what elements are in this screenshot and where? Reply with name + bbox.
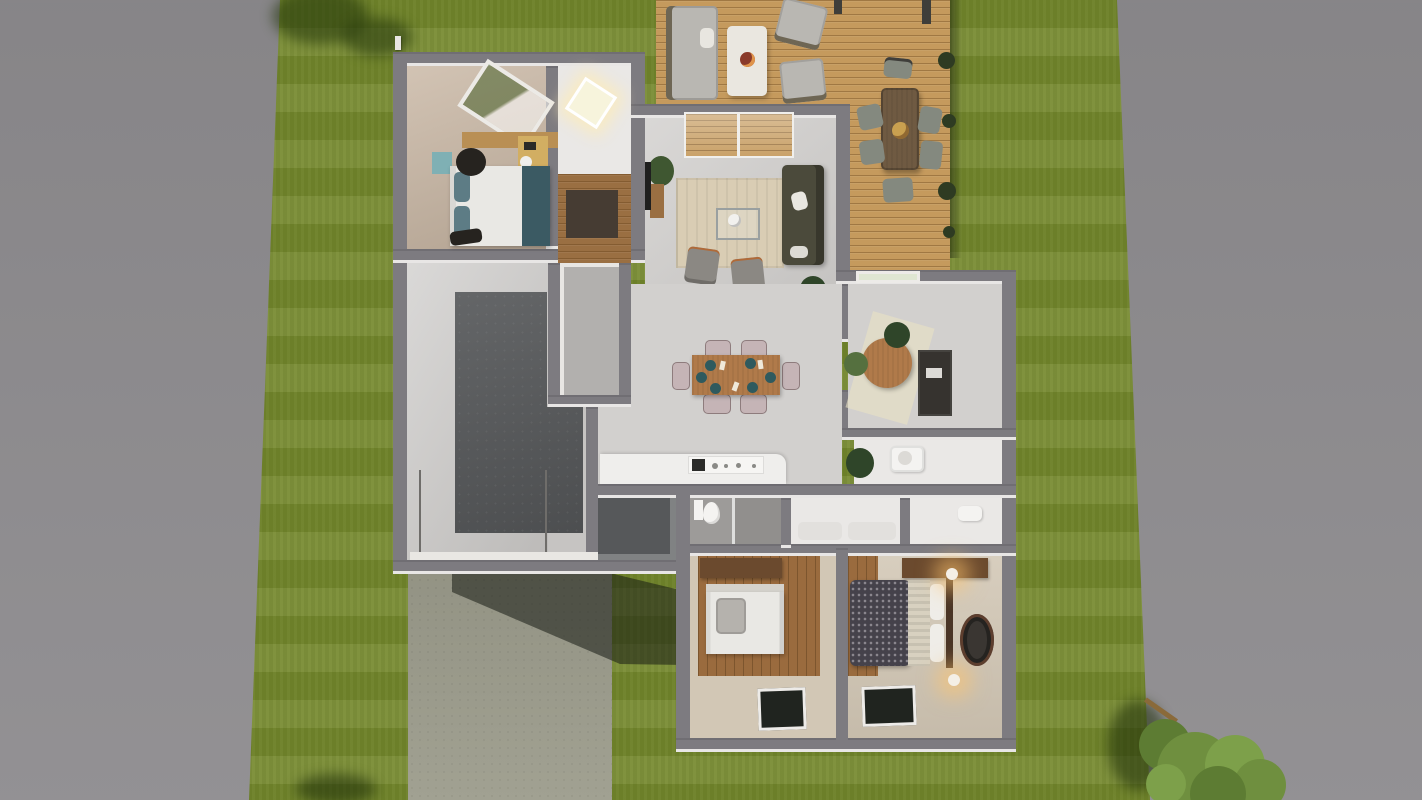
office-chair-green — [844, 352, 868, 376]
wall-a-right — [631, 52, 645, 263]
wall-a-top — [393, 52, 645, 66]
dining-plate-3 — [696, 372, 707, 383]
room-entry-mudroom — [598, 498, 676, 560]
master-pillow-2 — [930, 624, 944, 662]
outdoor-sofa-pillow — [700, 28, 714, 48]
living-console — [650, 184, 664, 218]
master-dresser — [902, 558, 988, 578]
wall-great-bottom — [598, 484, 1016, 498]
wall-wing-right — [1002, 270, 1016, 752]
wall-garage-right-top — [548, 263, 560, 407]
outdoor-dining-chair-1 — [883, 57, 913, 80]
wall-laundry-right — [619, 263, 631, 407]
hallway-mat-2 — [848, 522, 896, 540]
wall-master-top — [848, 544, 1016, 556]
kitchen-cooktop — [692, 459, 705, 471]
dining-plate-5 — [710, 383, 721, 394]
fruit-bowl — [740, 52, 755, 67]
deck-bush-2 — [942, 114, 956, 128]
wall-laundry-bottom — [548, 395, 631, 407]
tree-foliage-6 — [1146, 764, 1186, 800]
sofa-seat-pillow — [790, 246, 808, 258]
mudroom-plant — [846, 448, 874, 478]
master-headboard — [946, 578, 953, 668]
inner-bath-basin — [898, 451, 912, 465]
outdoor-sofa — [666, 6, 718, 100]
kitchen-knob-1 — [712, 463, 718, 469]
table-centerpiece — [892, 122, 909, 139]
dining-chair-end-right — [782, 362, 800, 390]
kitchen-knob-4 — [752, 464, 756, 468]
master-lamp-2 — [948, 674, 960, 686]
room-inner-bath — [854, 440, 1002, 484]
outdoor-dining-chair-6 — [882, 177, 914, 203]
office-desk — [918, 350, 952, 416]
deck-edge-shadow — [950, 0, 962, 258]
bush-shadow-bottomleft — [296, 774, 376, 800]
bedroom2-dresser — [700, 558, 782, 578]
bedroom2-pillows — [716, 598, 746, 634]
bedroom1-pillow-1 — [454, 172, 470, 202]
dining-plate-4 — [765, 372, 776, 383]
bedroom1-nightstand-teal — [432, 152, 452, 174]
bath1-shower — [732, 498, 781, 544]
wall-hall-right — [900, 498, 910, 548]
wall-bed2-master — [836, 548, 848, 752]
master-bed-runner — [908, 580, 930, 666]
wall-hall-left — [781, 498, 791, 548]
outdoor-dining-chair-4 — [917, 105, 943, 134]
bath1-toilet-bowl — [703, 502, 720, 524]
garage-door-track-2 — [545, 470, 547, 552]
outdoor-dining-chair-3 — [858, 138, 885, 165]
deck-bush-1 — [938, 52, 955, 69]
living-plant-corner — [648, 156, 674, 186]
office-window — [856, 271, 920, 283]
roof-vent — [395, 36, 401, 50]
tree-shadow-topleft-2 — [342, 18, 412, 56]
wall-garage-bottom — [393, 560, 689, 574]
glass-door-mullion — [737, 112, 740, 158]
dining-plate-1 — [705, 360, 716, 371]
office-plant — [884, 322, 910, 348]
master-pillow-1 — [930, 584, 944, 620]
master-lamp-1 — [946, 568, 958, 580]
dining-chair-bottom-2 — [740, 394, 767, 414]
master-round-rug — [960, 614, 994, 666]
render-viewport[interactable]: Top-down 3D rendering of a single-story … — [0, 0, 1422, 800]
wall-bath1-bed2 — [690, 544, 848, 556]
bedroom1-throw-blanket — [522, 166, 550, 246]
bedroom1-stool — [456, 148, 486, 176]
room-laundry — [560, 263, 619, 395]
kitchen-knob-3 — [736, 463, 741, 468]
bath1-toilet-tank — [694, 500, 703, 520]
wall-a-left — [393, 52, 407, 574]
bath2-fixture — [958, 506, 982, 521]
wall-garage-right-bottom — [586, 407, 598, 574]
coffee-table-decor — [728, 214, 741, 227]
wall-block-left — [676, 484, 690, 752]
wall-living-right — [836, 104, 850, 284]
deck-bush-4 — [943, 226, 955, 238]
wall-office-bath — [842, 428, 1016, 440]
room-bathroom-2 — [910, 498, 1002, 544]
right-gray-band — [1100, 0, 1422, 800]
outdoor-dining-chair-2 — [856, 103, 884, 131]
living-tv — [645, 162, 651, 210]
dining-plate-6 — [747, 382, 758, 393]
hallway-mat-1 — [798, 522, 842, 540]
master-bed-duvet — [850, 580, 910, 666]
master-low-window — [861, 685, 916, 727]
deck-bush-3 — [938, 182, 956, 200]
office-laptop — [926, 368, 942, 378]
dining-chair-end-left — [672, 362, 690, 390]
bedroom2-low-window — [757, 687, 806, 731]
pergola-post-2 — [834, 0, 842, 14]
pergola-post-1 — [922, 0, 931, 24]
garage-door-sill — [410, 552, 598, 560]
dining-napkin-2 — [757, 360, 763, 370]
garage-door-track-1 — [419, 470, 421, 552]
bedroom1-laptop — [524, 142, 536, 150]
dining-plate-2 — [745, 358, 756, 369]
bedroom2-bed-headboard — [706, 584, 784, 592]
outdoor-armchair-2 — [779, 58, 827, 104]
kitchen-knob-2 — [724, 464, 728, 468]
outdoor-dining-chair-5 — [919, 140, 944, 170]
dining-chair-bottom-1 — [703, 394, 731, 414]
entry-hall-mat — [566, 190, 618, 238]
living-armchair-1 — [684, 246, 721, 286]
